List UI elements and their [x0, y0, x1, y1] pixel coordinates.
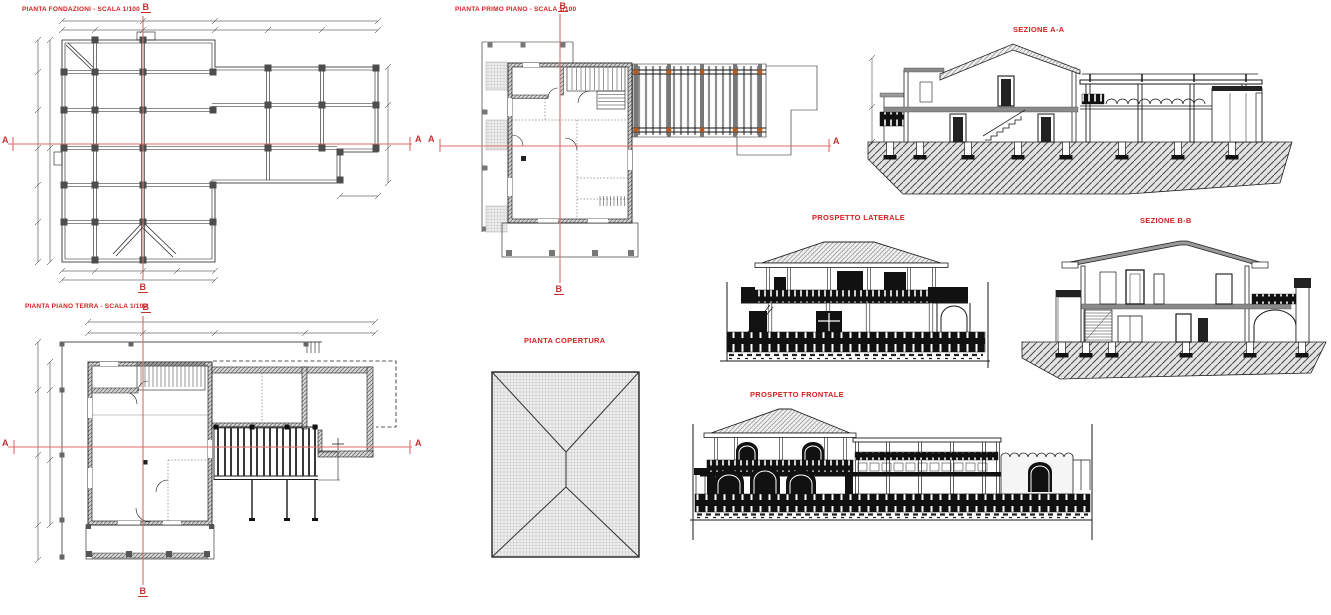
- ground-floor-plan-title: PIANTA PIANO TERRA - SCALA 1/100: [25, 303, 147, 310]
- section-marker-b: B: [138, 587, 148, 597]
- section-marker-b: B: [554, 285, 564, 295]
- section-marker-b: B: [141, 3, 151, 13]
- front-elevation-title: PROSPETTO FRONTALE: [750, 390, 844, 399]
- ground-floor-plan-drawing: [35, 319, 396, 563]
- cad-drawing: [0, 0, 1331, 615]
- foundation-plan-title: PIANTA FONDAZIONI - SCALA 1/100: [22, 6, 140, 13]
- section-marker-a: A: [415, 439, 422, 448]
- section-marker-b: B: [141, 303, 151, 313]
- first-floor-plan-drawing: [482, 42, 817, 257]
- section-marker-a: A: [2, 136, 9, 145]
- section-bb-title: SEZIONE B-B: [1140, 216, 1192, 225]
- drawing-sheet: PIANTA FONDAZIONI - SCALA 1/100 PIANTA P…: [0, 0, 1331, 615]
- side-elevation-drawing: [720, 242, 990, 368]
- roof-plan-drawing: [492, 372, 639, 557]
- roof-plan-title: PIANTA COPERTURA: [524, 336, 605, 345]
- section-aa-title: SEZIONE A-A: [1013, 25, 1064, 34]
- section-marker-a: A: [428, 135, 435, 144]
- section-marker-a: A: [833, 137, 840, 146]
- front-elevation-drawing: [690, 409, 1092, 540]
- section-marker-a: A: [415, 135, 422, 144]
- foundation-plan-drawing: [35, 18, 391, 283]
- section-marker-b: B: [558, 2, 568, 12]
- section-bb-drawing: [1022, 241, 1326, 379]
- section-marker-a: A: [2, 439, 9, 448]
- section-marker-b: B: [138, 283, 148, 293]
- section-aa-drawing: [868, 44, 1292, 194]
- side-elevation-title: PROSPETTO LATERALE: [812, 213, 905, 222]
